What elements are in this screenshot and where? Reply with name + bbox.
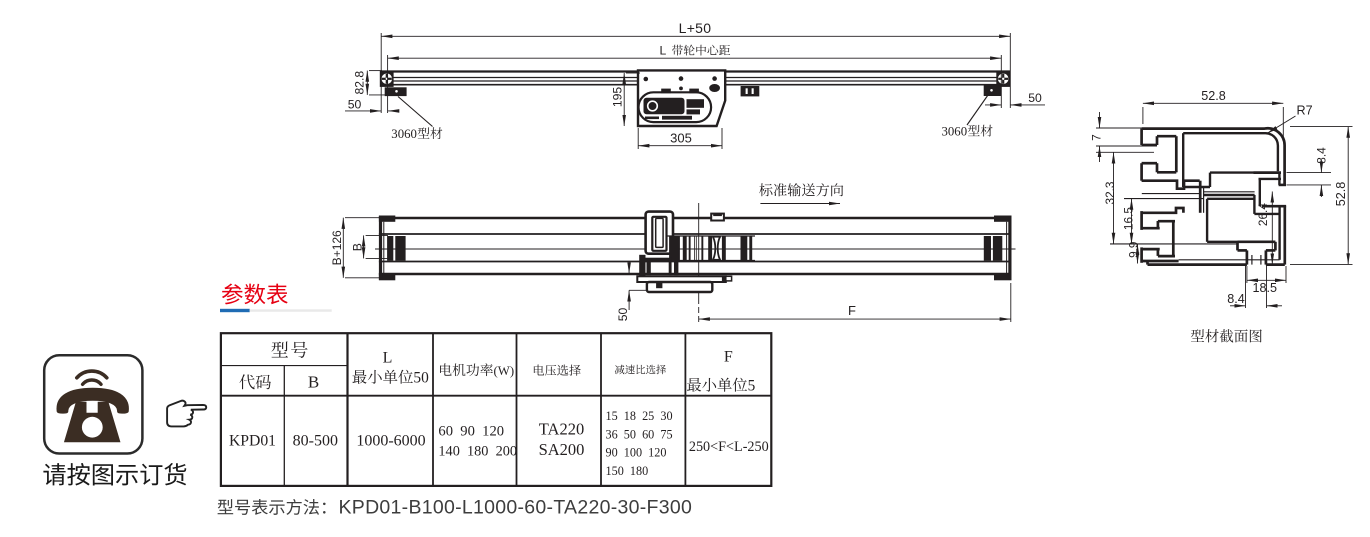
svg-text:L: L [660, 44, 667, 58]
svg-text:KPD01-B100-L1000-60-TA220-30-F: KPD01-B100-L1000-60-TA220-30-F300 [339, 497, 693, 519]
svg-text:195: 195 [611, 87, 625, 108]
svg-text:150 180: 150 180 [606, 464, 649, 478]
svg-text:80-500: 80-500 [293, 433, 338, 450]
svg-text:3060: 3060 [942, 125, 968, 139]
svg-text:F: F [724, 349, 733, 366]
svg-text:16.5: 16.5 [1122, 207, 1136, 230]
svg-text:250<F<L-250: 250<F<L-250 [689, 439, 769, 455]
svg-text:90 100 120: 90 100 120 [606, 446, 667, 460]
svg-text:52.8: 52.8 [1334, 182, 1348, 207]
svg-text:TA220: TA220 [539, 420, 584, 439]
svg-text:18.5: 18.5 [1253, 281, 1278, 295]
svg-text:7: 7 [1089, 134, 1103, 141]
svg-text:L+50: L+50 [679, 20, 712, 36]
svg-text:F: F [848, 303, 856, 318]
svg-text:82.8: 82.8 [352, 71, 366, 95]
svg-text:26.4: 26.4 [1256, 203, 1270, 226]
svg-text:32.3: 32.3 [1103, 181, 1117, 204]
svg-text:50: 50 [1028, 91, 1042, 105]
svg-text:140 180 200: 140 180 200 [438, 444, 517, 460]
svg-text:15 18 25 30: 15 18 25 30 [606, 409, 673, 423]
svg-text:60 90 120: 60 90 120 [438, 424, 504, 440]
svg-text:50: 50 [348, 97, 362, 111]
svg-text:52.8: 52.8 [1201, 89, 1226, 103]
svg-text:(W): (W) [494, 364, 515, 378]
svg-text:R7: R7 [1297, 103, 1313, 117]
svg-text:SA200: SA200 [539, 440, 585, 459]
svg-text:36 50 60 75: 36 50 60 75 [606, 428, 673, 442]
svg-text:3060: 3060 [391, 127, 417, 141]
svg-text:B: B [350, 243, 364, 251]
svg-text:9.9: 9.9 [1127, 241, 1141, 257]
svg-text:8.4: 8.4 [1315, 147, 1329, 164]
svg-text:5: 5 [748, 378, 756, 395]
svg-text:1000-6000: 1000-6000 [356, 433, 425, 450]
svg-text:305: 305 [670, 130, 692, 145]
svg-text:B+126: B+126 [330, 230, 344, 265]
svg-text:L: L [383, 350, 393, 367]
svg-text:50: 50 [616, 308, 630, 322]
svg-text:KPD01: KPD01 [229, 433, 276, 450]
svg-text:50: 50 [413, 370, 429, 387]
svg-text:8.4: 8.4 [1227, 292, 1245, 306]
svg-text:B: B [308, 373, 319, 392]
